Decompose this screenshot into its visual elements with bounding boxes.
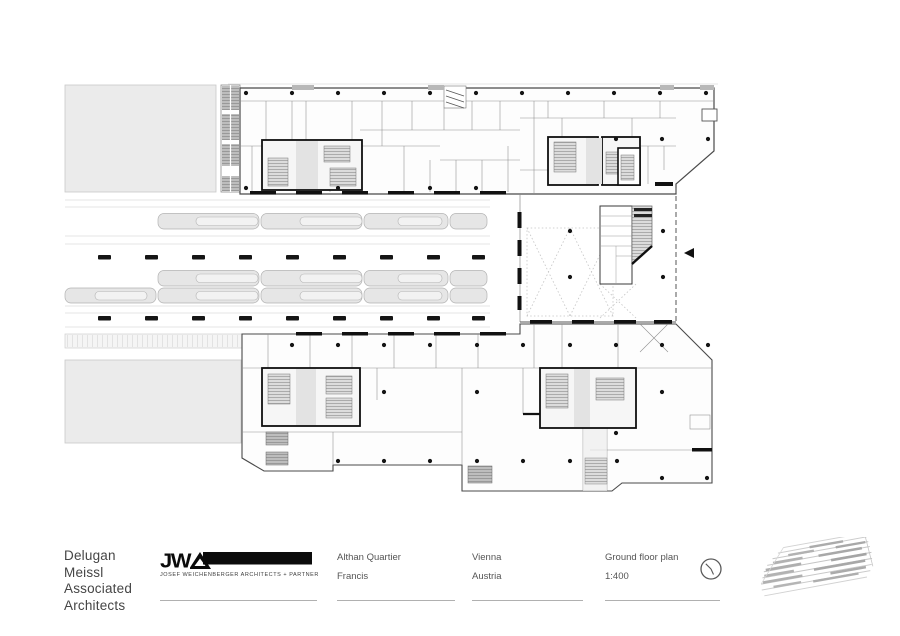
jwa-logo-mark xyxy=(190,552,312,570)
rail-platforms xyxy=(65,214,487,349)
drawing-scale: 1:400 xyxy=(605,571,678,582)
divider-rule xyxy=(605,600,720,601)
building-sketch xyxy=(752,537,877,603)
country: Austria xyxy=(472,571,502,582)
divider-rule xyxy=(160,600,317,601)
bottom-wing xyxy=(242,324,712,491)
divider-rule xyxy=(337,600,455,601)
project-name: Althan Quartier xyxy=(337,552,401,563)
top-wing xyxy=(240,85,717,195)
court-core xyxy=(600,206,652,284)
drawing-sheet: Delugan Meissl Associated Architects JW … xyxy=(0,0,900,636)
clock-icon xyxy=(697,555,725,583)
divider-rule xyxy=(472,600,583,601)
city: Vienna xyxy=(472,552,502,563)
drawing-title: Ground floor plan xyxy=(605,552,678,563)
jwa-logo: JW JOSEF WEICHENBERGER ARCHITECTS + PART… xyxy=(160,552,318,578)
central-court xyxy=(518,188,695,324)
entrance-arrow xyxy=(684,248,694,258)
project-sub: Francis xyxy=(337,571,401,582)
stair-strip xyxy=(221,85,240,192)
escalator xyxy=(444,86,466,108)
location-column: Vienna Austria xyxy=(472,552,502,590)
adjacent-building-blocks xyxy=(65,85,241,443)
drawing-column: Ground floor plan 1:400 xyxy=(605,552,678,590)
floor-plan-drawing xyxy=(0,0,900,520)
jwa-logo-letters: JW xyxy=(160,553,190,569)
jwa-logo-caption: JOSEF WEICHENBERGER ARCHITECTS + PARTNER xyxy=(160,572,318,578)
firm-name: Delugan Meissl Associated Architects xyxy=(64,548,132,614)
project-column: Althan Quartier Francis xyxy=(337,552,401,590)
